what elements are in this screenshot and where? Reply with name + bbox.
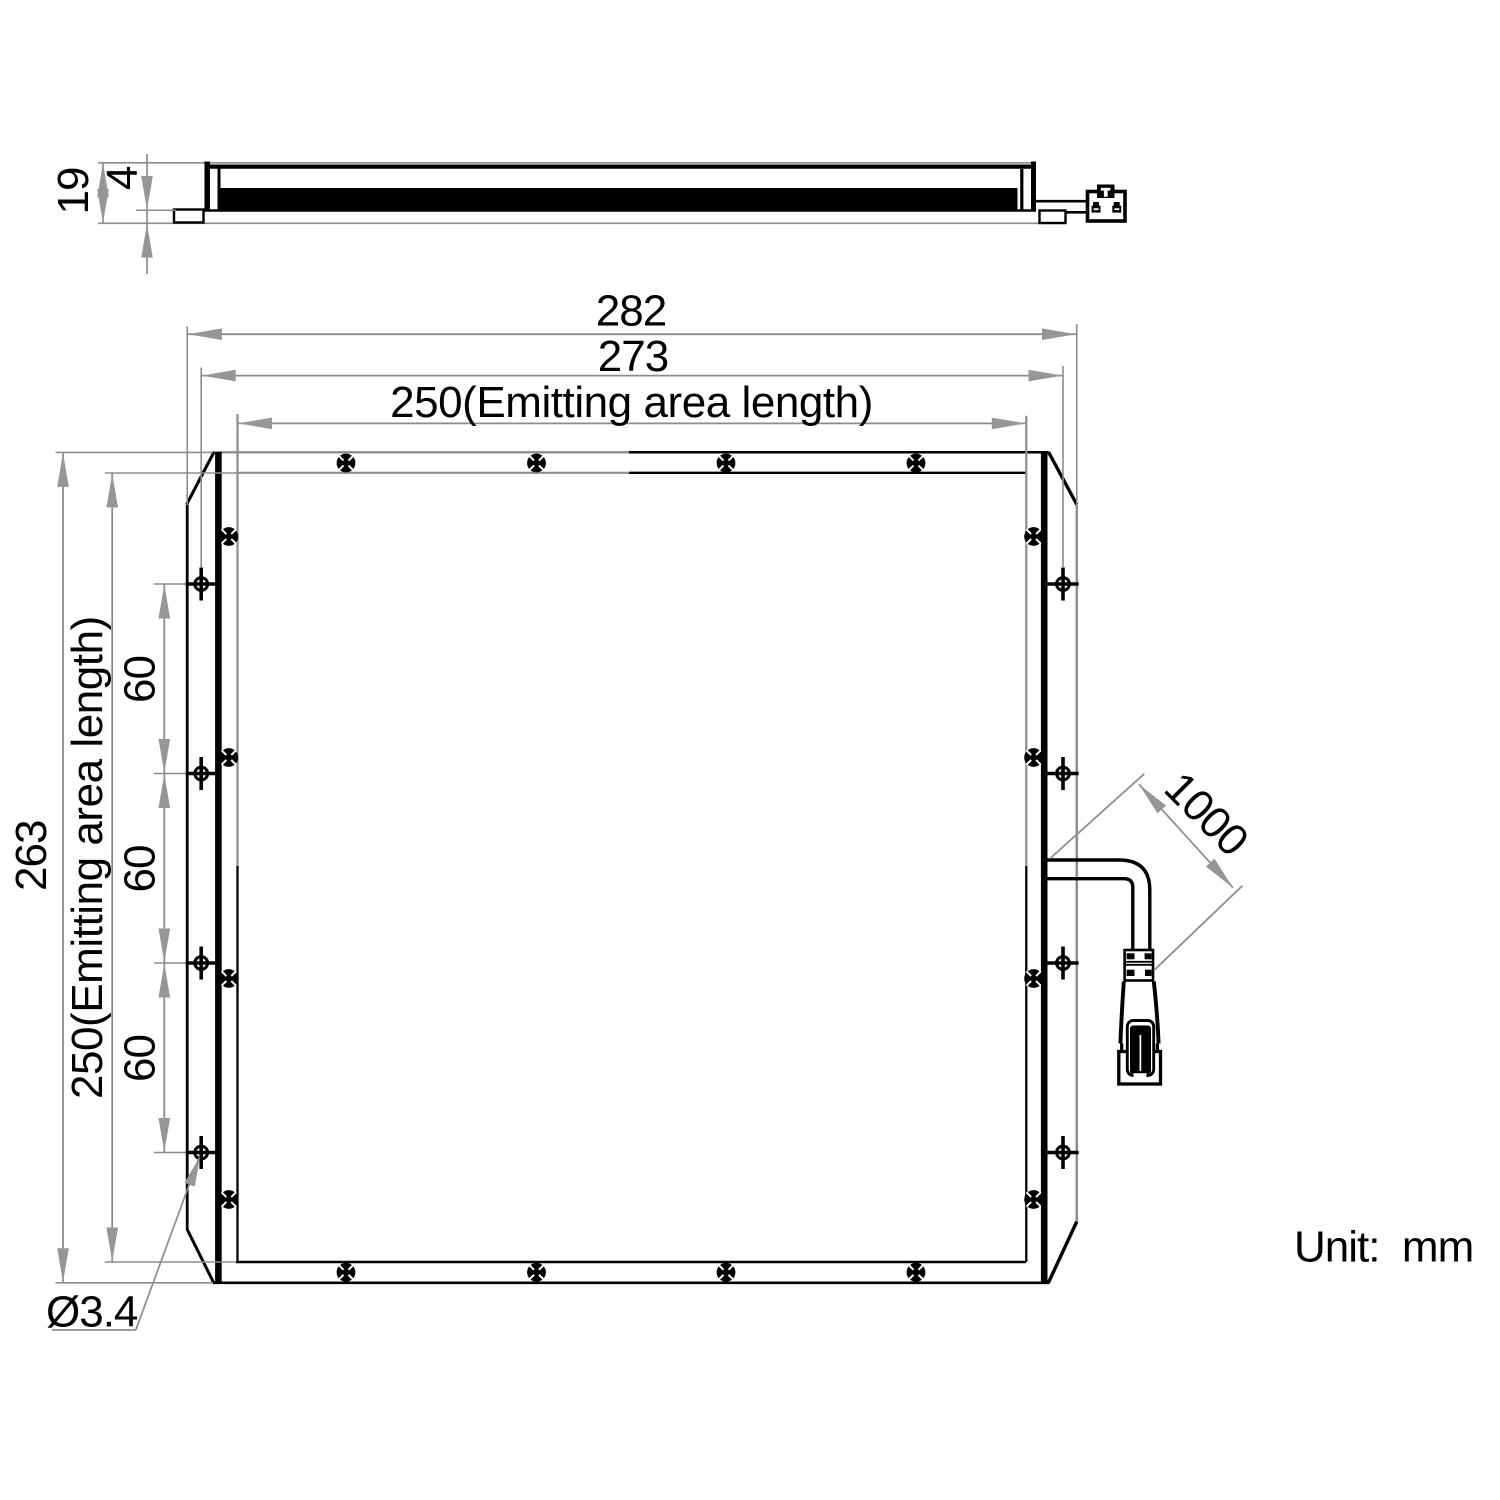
svg-text:250(Emitting area length): 250(Emitting area length) [63,616,112,1099]
svg-text:282: 282 [596,286,666,335]
svg-text:Ø3.4: Ø3.4 [46,1288,138,1337]
svg-text:19: 19 [49,168,98,215]
svg-text:250(Emitting area length): 250(Emitting area length) [390,378,873,427]
svg-text:273: 273 [598,332,668,381]
svg-text:Unit: mm: Unit: mm [1294,1223,1473,1272]
svg-text:60: 60 [116,656,165,703]
svg-text:4: 4 [98,166,147,190]
svg-text:1000: 1000 [1155,763,1258,866]
svg-text:60: 60 [116,846,165,893]
svg-text:60: 60 [116,1035,165,1082]
svg-text:263: 263 [7,821,56,891]
